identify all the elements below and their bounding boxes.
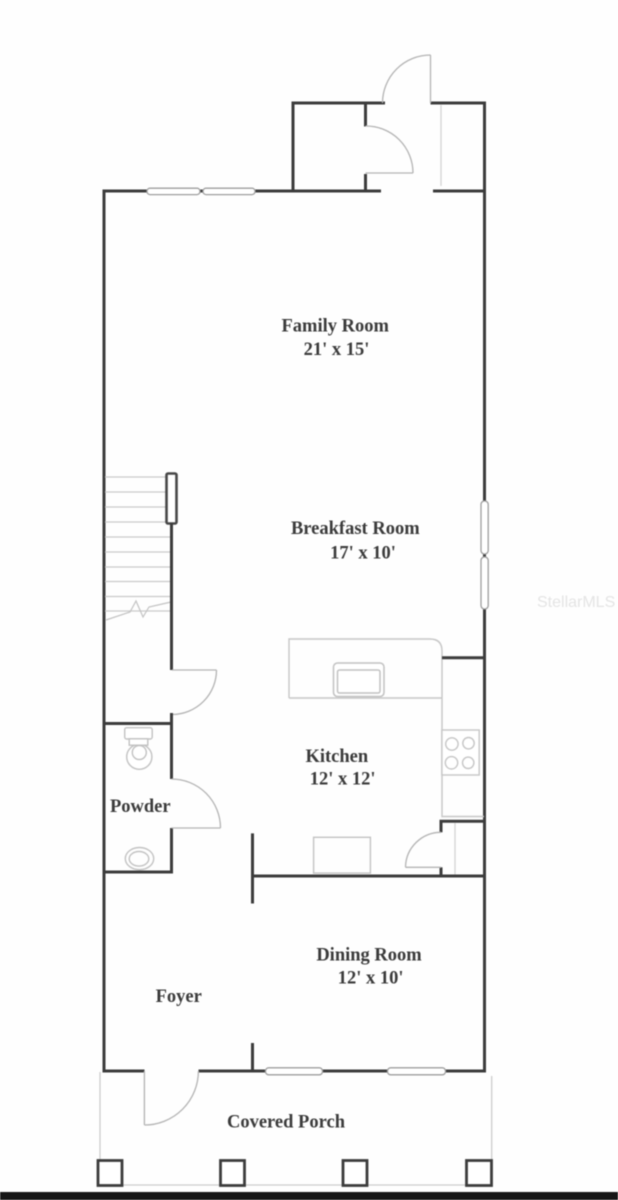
svg-text:StellarMLS: StellarMLS <box>537 594 615 611</box>
svg-text:12' x 12': 12' x 12' <box>310 770 376 790</box>
svg-text:Family Room: Family Room <box>282 317 390 337</box>
svg-text:Powder: Powder <box>110 797 171 817</box>
svg-text:Foyer: Foyer <box>156 987 202 1007</box>
svg-text:Breakfast Room: Breakfast Room <box>291 519 420 539</box>
svg-text:Covered Porch: Covered Porch <box>227 1113 346 1133</box>
svg-text:12' x 10': 12' x 10' <box>338 969 404 989</box>
svg-text:Dining Room: Dining Room <box>316 946 422 966</box>
svg-text:21' x 15': 21' x 15' <box>304 340 370 360</box>
svg-text:Kitchen: Kitchen <box>305 747 368 767</box>
svg-text:17' x 10': 17' x 10' <box>330 544 396 564</box>
